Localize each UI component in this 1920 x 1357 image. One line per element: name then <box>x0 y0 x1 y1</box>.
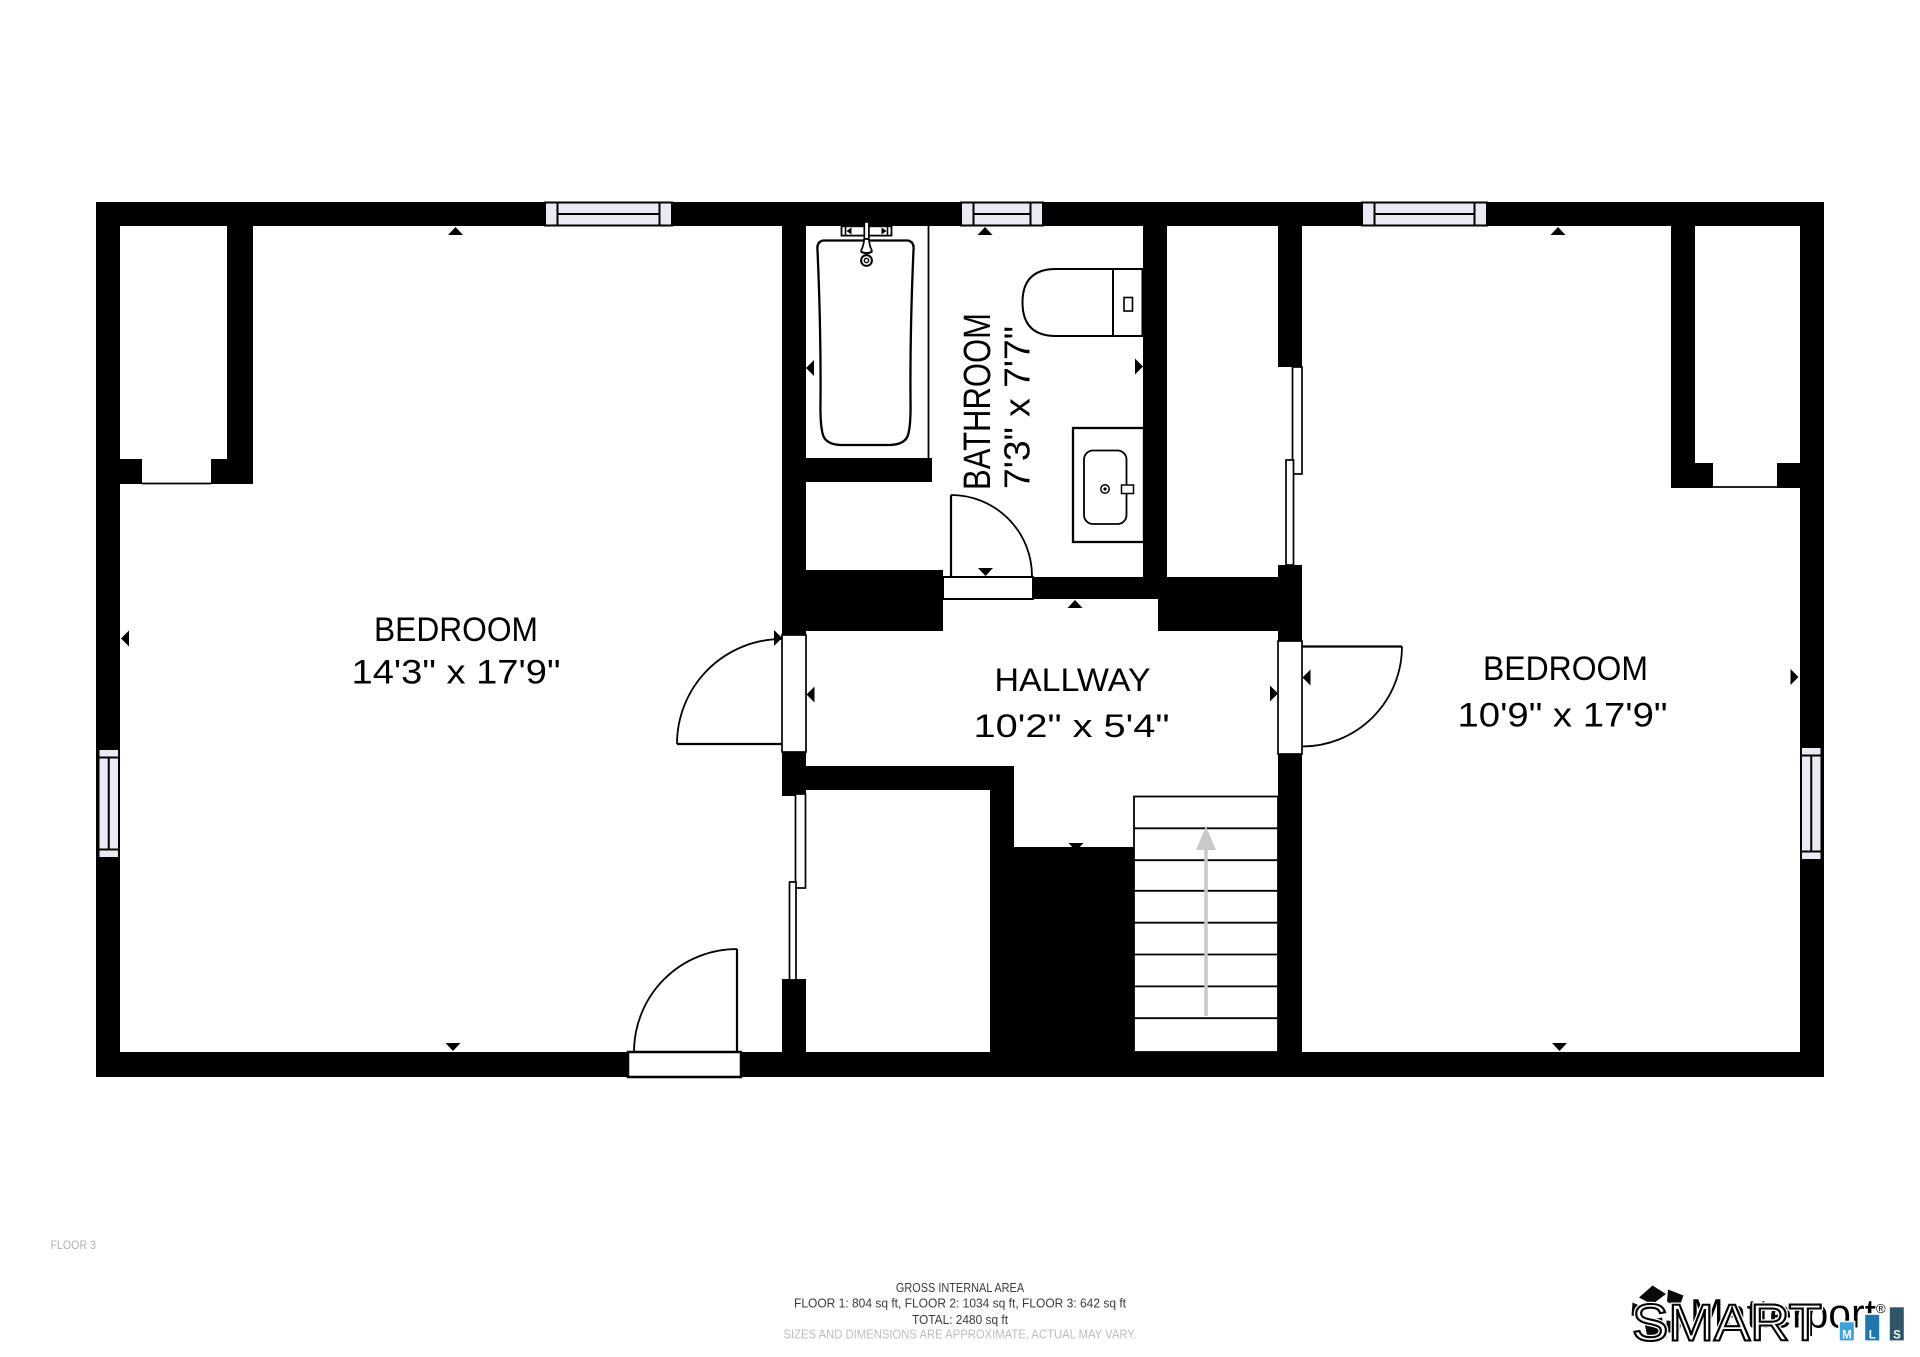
svg-text:FLOOR 3: FLOOR 3 <box>51 1240 97 1252</box>
svg-text:L: L <box>1869 1330 1876 1342</box>
svg-text:10'9" x 17'9": 10'9" x 17'9" <box>1458 697 1668 735</box>
svg-text:M: M <box>1842 1330 1852 1342</box>
svg-text:BEDROOM: BEDROOM <box>374 611 538 649</box>
svg-text:HALLWAY: HALLWAY <box>995 662 1151 698</box>
svg-text:BATHROOM: BATHROOM <box>957 313 999 490</box>
svg-text:SIZES AND DIMENSIONS ARE APPRO: SIZES AND DIMENSIONS ARE APPROXIMATE, AC… <box>784 1327 1137 1342</box>
svg-text:SMART: SMART <box>1632 1295 1822 1353</box>
svg-text:7'3" x 7'7": 7'3" x 7'7" <box>997 326 1038 489</box>
svg-text:TOTAL: 2480 sq ft: TOTAL: 2480 sq ft <box>912 1312 1008 1327</box>
svg-text:BEDROOM: BEDROOM <box>1483 650 1648 688</box>
svg-text:S: S <box>1893 1330 1901 1342</box>
svg-text:GROSS INTERNAL AREA: GROSS INTERNAL AREA <box>896 1280 1025 1295</box>
svg-text:10'2" x 5'4": 10'2" x 5'4" <box>974 708 1170 744</box>
svg-text:14'3" x 17'9": 14'3" x 17'9" <box>352 654 561 692</box>
svg-text:FLOOR 1: 804 sq ft, FLOOR 2: 1: FLOOR 1: 804 sq ft, FLOOR 2: 1034 sq ft,… <box>794 1296 1126 1311</box>
